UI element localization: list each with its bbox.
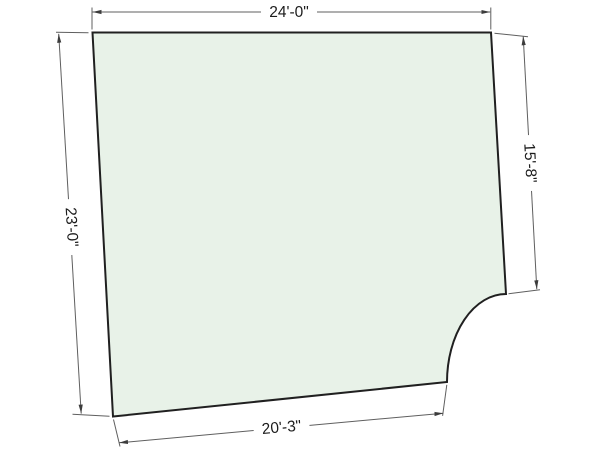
dimension-label-left: 23'-0" bbox=[62, 207, 81, 247]
dimension-label-bottom: 20'-3" bbox=[261, 418, 302, 439]
dimension-label-top: 24'-0" bbox=[269, 4, 308, 21]
extension-line bbox=[443, 385, 447, 416]
extension-line bbox=[73, 414, 110, 416]
dimension-top: 24'-0" bbox=[92, 4, 491, 30]
extension-line bbox=[495, 33, 529, 37]
extension-line bbox=[56, 32, 89, 33]
floor-plan-canvas: 24'-0" 23'-0" 15'-8" bbox=[0, 0, 600, 450]
room-outline-shape bbox=[93, 33, 507, 417]
dimension-label-right: 15'-8" bbox=[520, 143, 539, 183]
floor-plan-drawing: 24'-0" 23'-0" 15'-8" bbox=[0, 0, 600, 450]
extension-line bbox=[509, 290, 541, 294]
